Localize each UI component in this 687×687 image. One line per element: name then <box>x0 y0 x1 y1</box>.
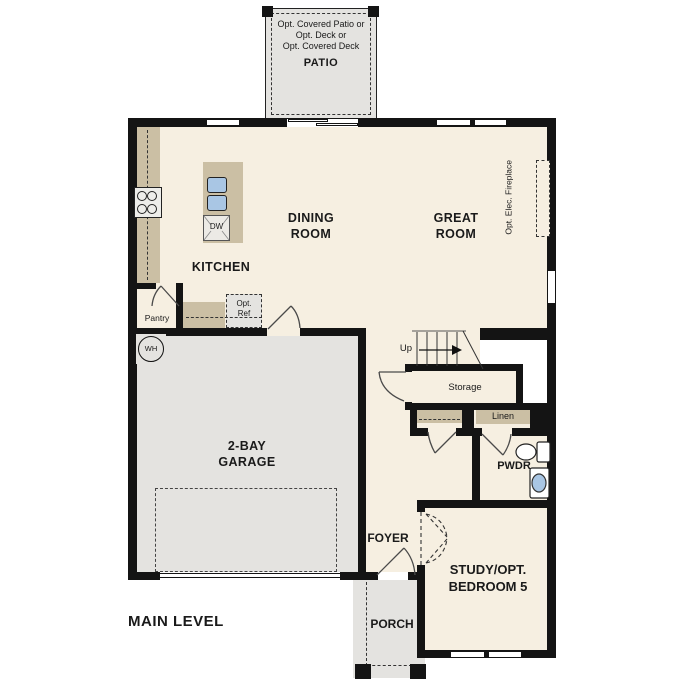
dining-room-label: DINING ROOM <box>266 210 356 242</box>
window-great-1 <box>436 119 471 126</box>
coat-closet-shelf <box>417 410 462 423</box>
patio-post-right <box>368 6 379 17</box>
storage-label: Storage <box>415 382 515 394</box>
linen-label: Linen <box>476 411 530 422</box>
coat-closet-rod <box>419 419 460 420</box>
window-great-right <box>547 270 556 304</box>
storage-door-gap <box>405 372 412 402</box>
sliding-door-panel-1 <box>288 119 328 122</box>
window-study-1 <box>450 651 485 658</box>
island-sink-basin-1 <box>207 177 227 193</box>
wall-study-top <box>417 500 556 508</box>
window-great-2 <box>474 119 507 126</box>
great-line1: GREAT <box>411 210 501 226</box>
wall-foyer-entry-left <box>366 572 378 580</box>
foyer-label: FOYER <box>352 531 424 546</box>
garage-line2: GARAGE <box>187 454 307 470</box>
porch-dashed-bottom <box>367 665 412 666</box>
window-study-2 <box>488 651 522 658</box>
garage-line1: 2-BAY <box>187 438 307 454</box>
garage-door-panel-line2 <box>160 577 340 578</box>
garage-label: 2-BAY GARAGE <box>187 438 307 470</box>
opt-ref-label-line2: Ref <box>226 309 262 319</box>
patio-note-line1: Opt. Covered Patio or <box>268 19 374 30</box>
sliding-door-panel-2 <box>316 123 358 126</box>
wall-closet-door-l <box>410 428 428 436</box>
opt-ref-label-line1: Opt. <box>226 299 262 309</box>
window-dining <box>206 119 240 126</box>
garage-door-dashed-outline <box>155 488 337 572</box>
dining-line1: DINING <box>266 210 356 226</box>
patio-label: PATIO <box>268 57 374 71</box>
great-line2: ROOM <box>411 226 501 242</box>
kitchen-label: KITCHEN <box>185 260 257 276</box>
patio-post-left <box>262 6 273 17</box>
study-label: STUDY/OPT. BEDROOM 5 <box>418 561 558 595</box>
great-room-label: GREAT ROOM <box>411 210 501 242</box>
kitchen-counter-lower <box>183 302 225 328</box>
porch-label: PORCH <box>356 617 428 632</box>
dining-line2: ROOM <box>266 226 356 242</box>
water-heater-label: WH <box>137 344 165 353</box>
fireplace-label: Opt. Elec. Fireplace <box>504 147 515 247</box>
stove <box>134 187 162 218</box>
wall-foyer-entry-right <box>408 572 417 580</box>
wall-closet-door-r <box>456 428 474 436</box>
study-line2: BEDROOM 5 <box>418 578 558 595</box>
dishwasher-label: DW <box>203 222 230 232</box>
porch-post-right <box>410 664 426 679</box>
wall-pantry-top <box>136 283 156 289</box>
island-sink-basin-2 <box>207 195 227 211</box>
powder-label: PWDR <box>478 460 550 474</box>
wall-void-top <box>480 328 556 340</box>
plan-title: MAIN LEVEL <box>128 613 273 632</box>
study-line1: STUDY/OPT. <box>418 561 558 578</box>
patio-note-line2: Opt. Deck or <box>268 30 374 41</box>
wall-pwdr-top-l <box>474 428 482 436</box>
wall-study-bottom <box>417 650 556 658</box>
wall-pwdr-top-r <box>512 428 547 436</box>
floor-plan: DW Opt. Ref WH <box>0 0 687 687</box>
garage-door-panel-line1 <box>160 573 340 574</box>
porch-post-left <box>355 664 371 679</box>
patio-option-note: Opt. Covered Patio or Opt. Deck or Opt. … <box>268 19 374 52</box>
garage-entry-gap <box>267 328 300 336</box>
pantry-label: Pantry <box>136 313 178 324</box>
up-label: Up <box>396 343 416 355</box>
fireplace-box <box>536 160 550 237</box>
patio-note-line3: Opt. Covered Deck <box>268 41 374 52</box>
